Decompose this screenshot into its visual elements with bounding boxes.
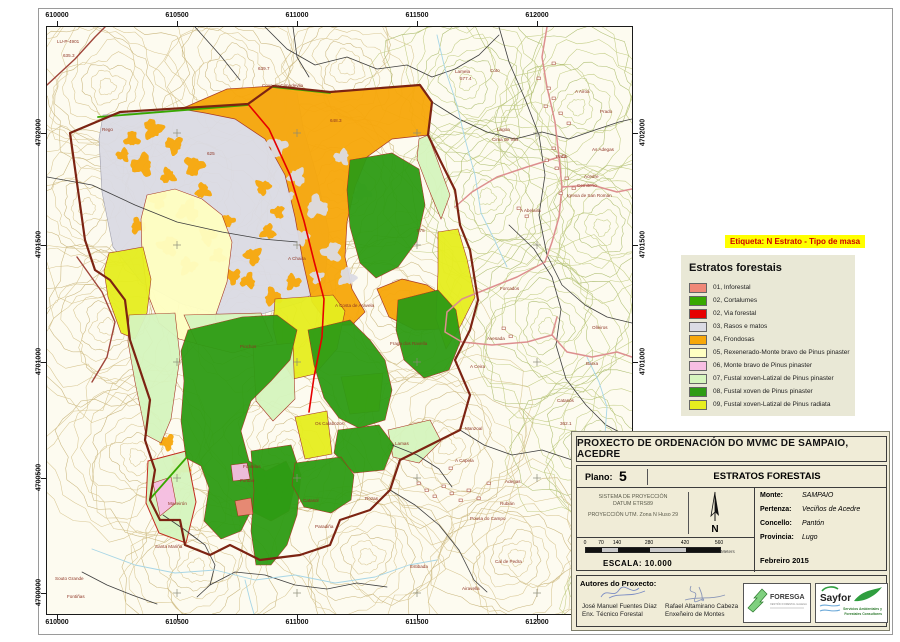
author-1: José Manuel Fuentes Díaz Enx. Técnico Fo… [582,603,657,619]
title-block: PROXECTO DE ORDENACIÓN DO MVMC DE SAMPAI… [571,431,890,631]
x-tick [537,21,538,26]
place-label: Fontiñas [67,594,85,599]
place-label: Fontelas [243,464,261,469]
divider [688,492,689,534]
legend-swatch [689,374,707,384]
legend-swatch [689,296,707,306]
place-label: Lamas [395,441,409,446]
svg-text:Servicios Ambientales y: Servicios Ambientales y [843,607,882,611]
title-block-header: Plano: 5 ESTRATOS FORESTAIS [577,466,886,488]
x-tick-label: 610000 [32,11,82,20]
svg-text:FORESGA: FORESGA [770,594,805,601]
x-tick-label: 611500 [392,618,442,627]
svg-text:XESTIÓN FORESTAL GALEGA: XESTIÓN FORESTAL GALEGA [770,601,807,606]
x-tick-label: 610500 [152,618,202,627]
field-label: Concello: [760,520,802,527]
place-label: Catasós [557,398,575,403]
place-label: Rozas [365,496,379,501]
x-tick [297,21,298,26]
y-tick [633,245,638,246]
y-tick-label: 4700000 [35,568,44,618]
sheet-fields: Monte:SAMPAIOPertenza:Veciños de AcedreC… [760,492,886,565]
legend-item-label: 01, Inforestal [713,284,751,291]
legend-item-label: 03, Rasos e matos [713,323,767,330]
field-label: Provincia: [760,534,802,541]
place-label: Manzoal [465,426,482,431]
y-tick [633,133,638,134]
place-label: Cima de Vila [492,137,518,142]
place-label: 635.3 [63,53,75,58]
place-label: Fraga dos Ravella [390,341,428,346]
scale-segment [586,548,602,552]
legend-item: 03, Rasos e matos [689,320,847,333]
scale-bar: 070140280420560 Meters ESCALA: 10.000 [585,540,745,568]
y-tick-label: 4700500 [35,453,44,503]
title-block-main: Plano: 5 ESTRATOS FORESTAIS SISTEMA DE P… [576,465,887,571]
place-label: 625 [207,151,215,156]
etiqueta-label: Etiqueta: N Estrato - Tipo de masa [725,235,865,248]
legend-item: 06, Monte bravo de Pinus pinaster [689,359,847,372]
place-label: 362.1 [560,421,572,426]
legend-swatch [689,283,707,293]
place-label: 577.4 [460,76,472,81]
page: LU-P-4901Rego635.3639.7648.3625575362.1C… [0,0,900,642]
y-tick-label: 4701000 [639,337,648,387]
field-label: Pertenza: [760,506,802,513]
place-label: Pacio [556,154,568,159]
north-arrow-icon: N [705,490,725,541]
plano-number: 5 [619,468,627,484]
y-tick-label: 4701500 [35,220,44,270]
legend-item: 02, Cortalumes [689,294,847,307]
place-label: Cemiterio [577,183,597,188]
sayfor-logo: Sayfor Servicios Ambientales y Forestale… [815,583,888,623]
place-label: Rego [102,127,113,132]
map-frame: LU-P-4901Rego635.3639.7648.3625575362.1C… [46,26,633,615]
field-value: Pantón [802,520,824,527]
legend-swatch [689,335,707,345]
scale-tick-label: 280 [645,540,653,546]
legend-item-label: 05, Rexenerado-Monte bravo de Pinus pina… [713,349,850,356]
place-label: 648.3 [330,118,342,123]
x-tick-label: 610500 [152,11,202,20]
legend-item-label: 02, Cortalumes [713,297,757,304]
legend-item: 07, Fustal xoven-Latizal de Pinus pinast… [689,372,847,385]
place-label: Cova da Cimadevila [262,83,304,88]
x-tick-label: 612000 [512,618,562,627]
place-label: Pousa do Campo [470,516,506,521]
x-tick [177,21,178,26]
x-tick-label: 611000 [272,11,322,20]
legend-item: 02, Via forestal [689,307,847,320]
authors-box: Autores do Proxecto: José Manuel Fuentes… [576,575,887,627]
place-label: Fontao [240,478,255,483]
legend-swatch [689,348,707,358]
legend-swatch [689,387,707,397]
legend-item-label: 07, Fustal xoven-Latizal de Pinus pinast… [713,375,834,382]
y-tick-label: 4702000 [35,108,44,158]
svg-text:Forestales Consultores: Forestales Consultores [844,612,882,616]
x-tick [417,21,418,26]
legend-swatch [689,361,707,371]
legend-item: 05, Rexenerado-Monte bravo de Pinus pina… [689,346,847,359]
place-label: A Capela [455,458,474,463]
place-label: Airavella [462,586,480,591]
legend-title: Estratos forestais [689,262,847,274]
x-tick-label: 612000 [512,11,562,20]
place-label: Catasol [303,498,319,503]
place-label: Forcados [500,286,520,291]
place-label: Coto [490,68,500,73]
legend-swatch [689,400,707,410]
place-label: A Costa de Aravela [335,303,375,308]
x-tick-label: 610000 [32,618,82,627]
x-tick-label: 611000 [272,618,322,627]
y-tick-label: 4701000 [35,337,44,387]
scale-segment [618,548,650,552]
place-label: Olleiros [592,325,608,330]
place-label: Acedre [584,174,599,179]
field-label: Monte: [760,492,802,499]
place-label: Avesada [487,336,505,341]
place-label: Lamela [455,69,471,74]
place-label: A Airoá [575,89,590,94]
topographic-map: LU-P-4901Rego635.3639.7648.3625575362.1C… [47,27,632,614]
sheet-field: Monte:SAMPAIO [760,492,886,506]
y-tick-label: 4701500 [639,220,648,270]
legend-item-label: 09, Fustal xoven-Latizal de Pinus radiat… [713,401,830,408]
field-value: SAMPAIO [802,492,833,499]
place-label: Estibada [410,564,428,569]
place-label: Prado [600,109,613,114]
place-label: Souto Grande [55,576,84,581]
legend-swatch [689,309,707,319]
scale-tick-label: 560 [715,540,723,546]
x-tick-label: 611500 [392,11,442,20]
place-label: Barxa [586,361,598,366]
scale-segment [650,548,686,552]
legend-item: 08, Fustal xoven de Pinus pinaster [689,385,847,398]
svg-text:Sayfor: Sayfor [820,593,851,604]
project-title: PROXECTO DE ORDENACIÓN DO MVMC DE SAMPAI… [576,436,887,462]
legend-item-label: 04, Frondosas [713,336,755,343]
legend-item-label: 06, Monte bravo de Pinus pinaster [713,362,812,369]
field-value: Veciños de Acedre [802,506,860,513]
scale-tick-label: 70 [598,540,604,546]
legend-swatch [689,322,707,332]
place-label: 575 [417,228,425,233]
place-label: Igrexa de San Román [567,193,612,198]
legend-item-label: 08, Fustal xoven de Pinus pinaster [713,388,813,395]
place-label: Paradiña [315,524,334,529]
y-tick [633,362,638,363]
legend-panel: Estratos forestais 01, Inforestal02, Cor… [681,255,855,416]
author-2: Rafael Altamirano Cabeza Enxeñeiro de Mo… [665,603,738,619]
projection-info: SISTEMA DE PROYECCIÓN DATUM ETRS89 PROYE… [579,494,687,519]
scale-tick-label: 140 [613,540,621,546]
scale-segment [686,548,720,552]
legend-item-label: 02, Via forestal [713,310,756,317]
place-label: A Abelaira [520,208,541,213]
place-label: Maceirón [168,501,187,506]
field-value: Lugo [802,534,818,541]
y-tick-label: 4702000 [639,108,648,158]
svg-text:N: N [711,524,718,535]
scale-segment [602,548,618,552]
place-label: Adegas [505,479,521,484]
place-label: Santa Mariña [155,544,183,549]
foresga-logo: FORESGA XESTIÓN FORESTAL GALEGA [743,583,811,623]
place-label: A Ceira [470,364,486,369]
legend-item: 01, Inforestal [689,281,847,294]
place-label: Piochos [240,344,257,349]
sheet-date: Febreiro 2015 [760,556,886,565]
scale-unit: Meters [721,549,735,554]
place-label: Os Calabozos [315,421,345,426]
place-label: Lagoa [497,127,510,132]
scale-tick-label: 0 [584,540,587,546]
map-name: ESTRATOS FORESTAIS [647,471,887,482]
scale-text: ESCALA: 10.000 [603,559,745,568]
legend-item: 04, Frondosas [689,333,847,346]
divider [577,537,754,538]
place-label: A Chaira [288,256,306,261]
sheet-field: Pertenza:Veciños de Acedre [760,506,886,520]
place-label: Rubián [500,501,515,506]
place-label: As Adegas [592,147,615,152]
sheet-field: Concello:Pantón [760,520,886,534]
place-label: Cal de Pedra [495,559,522,564]
plano-label: Plano: [585,472,613,482]
scale-tick-label: 420 [681,540,689,546]
sheet-field: Provincia:Lugo [760,534,886,548]
place-label: 639.7 [258,66,270,71]
legend-item: 09, Fustal xoven-Latizal de Pinus radiat… [689,398,847,411]
place-label: LU-P-4901 [57,39,80,44]
divider [754,488,755,572]
x-tick [57,21,58,26]
